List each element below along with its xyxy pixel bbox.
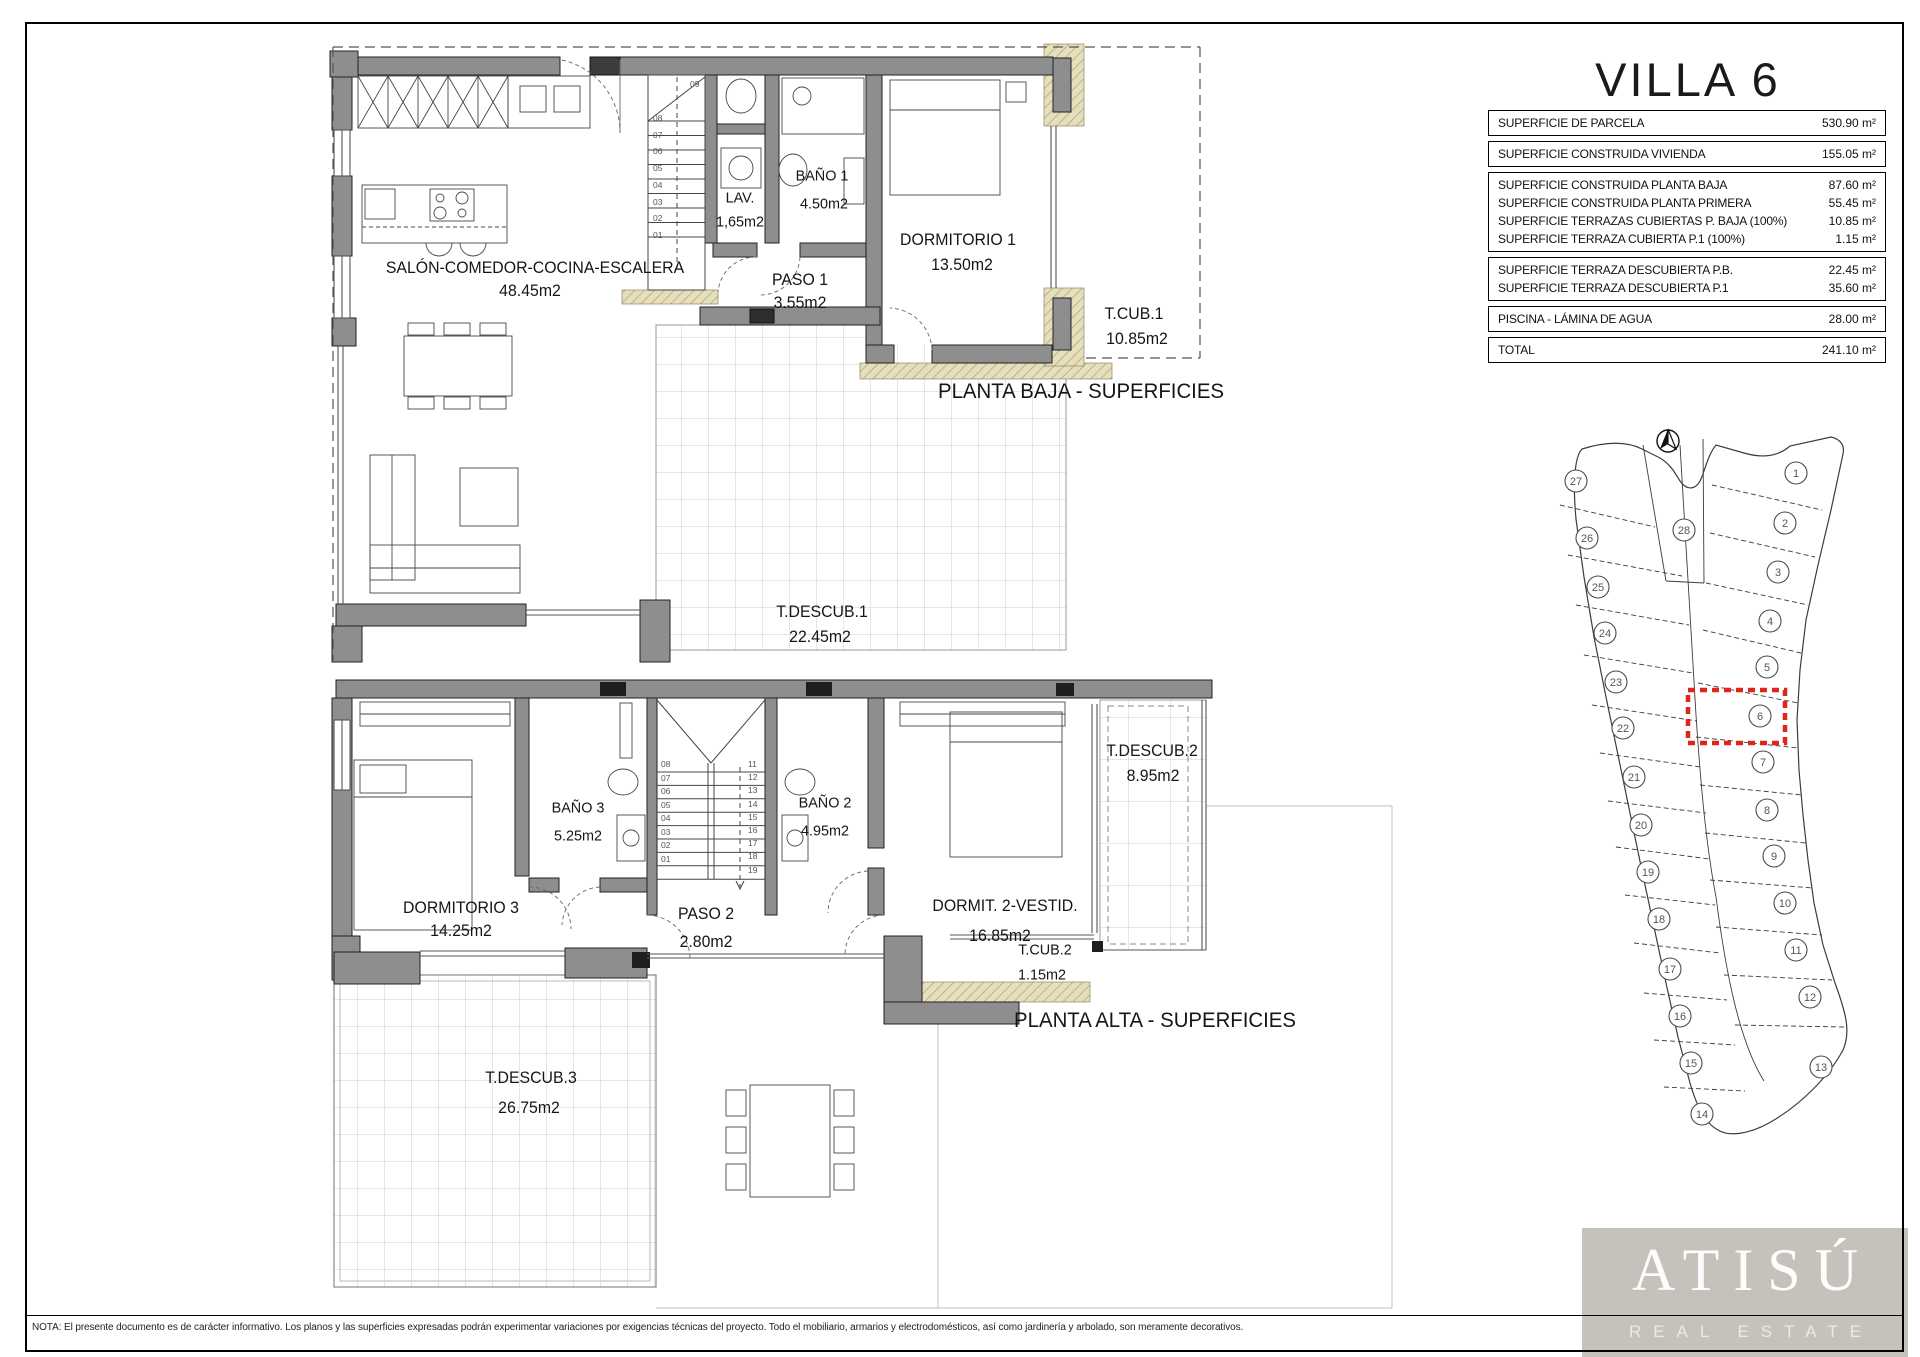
site-plot-9: 9 <box>1763 845 1785 867</box>
logo-box: ATISÚ REAL ESTATE <box>1582 1228 1908 1357</box>
site-plot-28: 28 <box>1673 519 1695 541</box>
surface-table: SUPERFICIE DE PARCELA530.90 m²SUPERFICIE… <box>1488 110 1886 368</box>
svg-text:7: 7 <box>1760 757 1766 769</box>
svg-text:20: 20 <box>1635 820 1647 832</box>
room-label-tdescub3: T.DESCUB.3 <box>485 1070 577 1087</box>
room-label-tdescub1: T.DESCUB.1 <box>776 604 868 621</box>
room-label-paso2: PASO 2 <box>678 906 734 923</box>
upper-floor-caption: PLANTA ALTA - SUPERFICIES <box>1014 1009 1296 1033</box>
svg-text:2: 2 <box>1782 518 1788 530</box>
stair-step-number: 16 <box>748 826 757 835</box>
paso-pillar <box>750 309 774 323</box>
surface-row-label: SUPERFICIE DE PARCELA <box>1498 116 1822 130</box>
surface-row-label: SUPERFICIE TERRAZA CUBIERTA P.1 (100%) <box>1498 232 1835 246</box>
room-area-paso2: 2.80m2 <box>680 934 733 951</box>
surface-table-group: SUPERFICIE CONSTRUIDA PLANTA BAJA87.60 m… <box>1488 172 1886 252</box>
surface-row-label: TOTAL <box>1498 343 1822 357</box>
site-plot-27: 27 <box>1565 470 1587 492</box>
wall-pillar <box>600 682 626 696</box>
room-area-tcub1: 10.85m2 <box>1106 331 1168 348</box>
svg-text:9: 9 <box>1771 851 1777 863</box>
stair-step-number: 09 <box>690 79 699 89</box>
surface-table-group: TOTAL241.10 m² <box>1488 337 1886 363</box>
stair-step-number: 03 <box>653 198 662 207</box>
surface-row-label: SUPERFICIE CONSTRUIDA PLANTA PRIMERA <box>1498 196 1829 210</box>
site-plot-19: 19 <box>1637 861 1659 883</box>
surface-row-label: SUPERFICIE TERRAZAS CUBIERTAS P. BAJA (1… <box>1498 214 1829 228</box>
surface-row-value: 22.45 m² <box>1829 263 1876 277</box>
north-arrow-icon <box>1657 429 1679 452</box>
site-plot-24: 24 <box>1594 622 1616 644</box>
svg-text:19: 19 <box>1642 867 1654 879</box>
surface-row-label: SUPERFICIE CONSTRUIDA VIVIENDA <box>1498 147 1822 161</box>
room-label-dorm3: DORMITORIO 3 <box>403 900 519 917</box>
stair-step-number: 13 <box>748 786 757 795</box>
stair-step-number: 01 <box>661 855 670 864</box>
surface-row-value: 530.90 m² <box>1822 116 1876 130</box>
room-label-bano2: BAÑO 2 <box>799 796 852 811</box>
stair-step-number: 06 <box>661 787 670 796</box>
room-label-tdescub2: T.DESCUB.2 <box>1106 743 1198 760</box>
stair-step-number: 02 <box>661 841 670 850</box>
surface-table-row: SUPERFICIE CONSTRUIDA PLANTA PRIMERA55.4… <box>1489 194 1885 212</box>
site-plot-21: 21 <box>1623 766 1645 788</box>
room-label-bano3: BAÑO 3 <box>552 801 605 816</box>
surface-table-group: SUPERFICIE TERRAZA DESCUBIERTA P.B.22.45… <box>1488 257 1886 301</box>
stair-step-number: 08 <box>653 114 662 123</box>
stair-step-number: 17 <box>748 839 757 848</box>
surface-table-group: PISCINA - LÁMINA DE AGUA28.00 m² <box>1488 306 1886 332</box>
site-plot-20: 20 <box>1630 814 1652 836</box>
stair-step-number: 05 <box>653 164 662 173</box>
svg-text:17: 17 <box>1664 964 1676 976</box>
site-plot-12: 12 <box>1799 986 1821 1008</box>
surface-table-row: PISCINA - LÁMINA DE AGUA28.00 m² <box>1489 310 1885 328</box>
site-plot-18: 18 <box>1648 908 1670 930</box>
site-plot-22: 22 <box>1612 717 1634 739</box>
stair-step-number: 02 <box>653 214 662 223</box>
room-area-lav: 1,65m2 <box>716 215 764 230</box>
site-plot-4: 4 <box>1759 610 1781 632</box>
stair-step-number: 06 <box>653 147 662 156</box>
footer-divider <box>25 1315 1902 1316</box>
surface-row-value: 55.45 m² <box>1829 196 1876 210</box>
stair-step-number: 05 <box>661 801 670 810</box>
site-boundary <box>1574 437 1846 1134</box>
room-label-lav: LAV. <box>726 191 755 206</box>
svg-text:16: 16 <box>1674 1011 1686 1023</box>
svg-text:4: 4 <box>1767 616 1773 628</box>
svg-text:27: 27 <box>1570 476 1582 488</box>
surface-table-row: SUPERFICIE CONSTRUIDA VIVIENDA155.05 m² <box>1489 145 1885 163</box>
svg-text:8: 8 <box>1764 805 1770 817</box>
surface-row-label: SUPERFICIE CONSTRUIDA PLANTA BAJA <box>1498 178 1829 192</box>
svg-text:15: 15 <box>1685 1058 1697 1070</box>
site-plot-25: 25 <box>1587 576 1609 598</box>
upper-floor-plan <box>330 675 1400 1320</box>
site-plot-5: 5 <box>1756 656 1778 678</box>
ground-floor-plan <box>330 40 1220 665</box>
tdescub3-grid <box>334 975 656 1287</box>
svg-text:23: 23 <box>1610 677 1622 689</box>
room-label-tcub1: T.CUB.1 <box>1105 306 1164 323</box>
site-plot-16: 16 <box>1669 1005 1691 1027</box>
room-area-dorm1: 13.50m2 <box>931 257 993 274</box>
logo-wordmark: ATISÚ <box>1582 1236 1908 1305</box>
entrance-pillar <box>590 57 620 75</box>
room-label-dorm1: DORMITORIO 1 <box>900 232 1016 249</box>
tdescub2-grid <box>1100 700 1206 950</box>
room-area-bano1: 4.50m2 <box>800 197 848 212</box>
footer-note: NOTA: El presente documento es de caráct… <box>32 1322 1572 1333</box>
svg-text:21: 21 <box>1628 772 1640 784</box>
surface-row-label: SUPERFICIE TERRAZA DESCUBIERTA P.B. <box>1498 263 1829 277</box>
site-plot-13: 13 <box>1810 1056 1832 1078</box>
surface-table-group: SUPERFICIE CONSTRUIDA VIVIENDA155.05 m² <box>1488 141 1886 167</box>
surface-row-value: 10.85 m² <box>1829 214 1876 228</box>
logo-tagline: REAL ESTATE <box>1582 1322 1908 1342</box>
room-area-bano3: 5.25m2 <box>554 829 602 844</box>
svg-text:18: 18 <box>1653 914 1665 926</box>
svg-text:10: 10 <box>1779 898 1791 910</box>
wall-pillar <box>1056 683 1074 696</box>
stair-step-number: 03 <box>661 828 670 837</box>
svg-text:1: 1 <box>1793 468 1799 480</box>
surface-table-row: SUPERFICIE DE PARCELA530.90 m² <box>1489 114 1885 132</box>
room-label-bano1: BAÑO 1 <box>796 169 849 184</box>
site-plot-15: 15 <box>1680 1052 1702 1074</box>
stair-step-number: 08 <box>661 760 670 769</box>
room-area-paso1: 3.55m2 <box>774 295 827 312</box>
surface-row-value: 35.60 m² <box>1829 281 1876 295</box>
surface-table-row: SUPERFICIE TERRAZA DESCUBIERTA P.B.22.45… <box>1489 261 1885 279</box>
stair-step-number: 01 <box>653 231 662 240</box>
ground-floor-caption: PLANTA BAJA - SUPERFICIES <box>938 380 1224 404</box>
svg-text:22: 22 <box>1617 723 1629 735</box>
svg-text:11: 11 <box>1790 945 1801 957</box>
site-plot-1: 1 <box>1785 462 1807 484</box>
room-label-tcub2: T.CUB.2 <box>1018 943 1072 958</box>
stair-step-number: 04 <box>661 814 670 823</box>
surface-table-row: SUPERFICIE TERRAZAS CUBIERTAS P. BAJA (1… <box>1489 212 1885 230</box>
site-plot-3: 3 <box>1767 561 1789 583</box>
svg-text:28: 28 <box>1678 525 1690 537</box>
surface-row-value: 28.00 m² <box>1829 312 1876 326</box>
room-area-salon: 48.45m2 <box>499 283 561 300</box>
surface-table-row: SUPERFICIE TERRAZA DESCUBIERTA P.135.60 … <box>1489 279 1885 297</box>
room-area-tdescub1: 22.45m2 <box>789 629 851 646</box>
surface-row-value: 87.60 m² <box>1829 178 1876 192</box>
stair-step-number: 04 <box>653 181 662 190</box>
surface-table-row: SUPERFICIE TERRAZA CUBIERTA P.1 (100%)1.… <box>1489 230 1885 248</box>
wall-pillar <box>806 682 832 696</box>
stair-step-number: 12 <box>748 773 757 782</box>
room-area-bano2: 4.95m2 <box>801 824 849 839</box>
stair-step-number: 14 <box>748 800 757 809</box>
svg-text:13: 13 <box>1815 1062 1827 1074</box>
room-area-tdescub3: 26.75m2 <box>498 1100 560 1117</box>
room-label-salon: SALÓN-COMEDOR-COCINA-ESCALERA <box>386 260 684 277</box>
surface-row-value: 241.10 m² <box>1822 343 1876 357</box>
svg-text:26: 26 <box>1581 533 1593 545</box>
room-area-tdescub2: 8.95m2 <box>1127 768 1180 785</box>
site-plot-14: 14 <box>1691 1103 1713 1125</box>
svg-text:14: 14 <box>1696 1109 1708 1121</box>
site-plan: 2726252423222120191817161514281234567891… <box>1530 415 1920 1195</box>
surface-table-row: SUPERFICIE CONSTRUIDA PLANTA BAJA87.60 m… <box>1489 176 1885 194</box>
svg-text:3: 3 <box>1775 567 1781 579</box>
site-plot-6: 6 <box>1749 705 1771 727</box>
surface-row-label: PISCINA - LÁMINA DE AGUA <box>1498 312 1829 326</box>
surface-row-label: SUPERFICIE TERRAZA DESCUBIERTA P.1 <box>1498 281 1829 295</box>
site-plot-7: 7 <box>1752 751 1774 773</box>
site-plot-2: 2 <box>1774 512 1796 534</box>
site-plot-17: 17 <box>1659 958 1681 980</box>
svg-text:25: 25 <box>1592 582 1604 594</box>
stair-step-number: 19 <box>748 866 757 875</box>
room-label-dorm2: DORMIT. 2-VESTID. <box>932 898 1077 915</box>
room-area-dorm3: 14.25m2 <box>430 923 492 940</box>
stair-step-number: 07 <box>661 774 670 783</box>
site-plot-23: 23 <box>1605 671 1627 693</box>
surface-row-value: 155.05 m² <box>1822 147 1876 161</box>
stair-step-number: 18 <box>748 852 757 861</box>
surface-row-value: 1.15 m² <box>1835 232 1876 246</box>
svg-text:6: 6 <box>1757 711 1763 723</box>
site-plot-11: 11 <box>1785 939 1807 961</box>
svg-text:12: 12 <box>1804 992 1816 1004</box>
site-plot-26: 26 <box>1576 527 1598 549</box>
stair-step-number: 07 <box>653 131 662 140</box>
svg-text:5: 5 <box>1764 662 1770 674</box>
site-plot-10: 10 <box>1774 892 1796 914</box>
stair-step-number: 15 <box>748 813 757 822</box>
room-label-paso1: PASO 1 <box>772 272 828 289</box>
stair-step-number: 11 <box>748 760 757 769</box>
surface-table-group: SUPERFICIE DE PARCELA530.90 m² <box>1488 110 1886 136</box>
room-area-tcub2: 1.15m2 <box>1018 968 1066 983</box>
surface-table-row: TOTAL241.10 m² <box>1489 341 1885 359</box>
svg-text:24: 24 <box>1599 628 1611 640</box>
page-title: VILLA 6 <box>1490 52 1886 107</box>
site-plot-8: 8 <box>1756 799 1778 821</box>
